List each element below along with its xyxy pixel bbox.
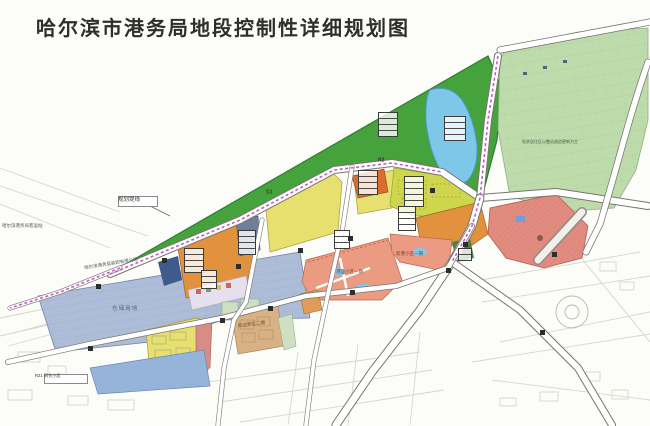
planning-map-scan: 哈尔滨市港务局地段控制性详细规划图 规划堤线 R21 码头小区 G1 R2 哈尔… xyxy=(0,0,650,426)
indicator-table xyxy=(378,112,398,137)
indicator-table xyxy=(444,116,466,141)
road-node-marker xyxy=(298,248,303,253)
indicator-table xyxy=(358,170,378,195)
road-node-marker xyxy=(446,268,451,273)
dike-label-chip: 规划堤线 xyxy=(118,196,158,207)
road-node-marker xyxy=(552,252,557,257)
storage-area-label: 仓储用地 xyxy=(112,306,138,312)
green-zone-code: G1 xyxy=(266,190,273,195)
road-node-marker xyxy=(220,318,225,323)
residential-zone-code: R2 xyxy=(378,158,384,163)
existing-note-label: 现状居住区以整治改造更新为主 xyxy=(522,140,578,144)
passenger-center-label: 哈尔滨港务局客运站 xyxy=(2,224,43,229)
indicator-table xyxy=(398,206,416,231)
district-code-chip: R21 码头小区 xyxy=(44,374,88,384)
map-drawing xyxy=(0,0,650,426)
road-node-marker xyxy=(350,290,355,295)
map-title: 哈尔滨市港务局地段控制性详细规划图 xyxy=(36,12,410,41)
road-node-marker xyxy=(540,330,545,335)
indicator-table xyxy=(404,176,424,207)
indicator-table xyxy=(238,230,256,255)
district-code-label: R21 码头小区 xyxy=(35,374,61,378)
road-node-marker xyxy=(463,242,468,247)
road-node-marker xyxy=(96,284,101,289)
indicator-table xyxy=(201,270,217,289)
road-node-marker xyxy=(162,258,167,263)
road-node-marker xyxy=(430,188,435,193)
existing-residential-zone xyxy=(498,28,648,212)
road-node-marker xyxy=(236,264,241,269)
district-one-label: 港运小区一期 xyxy=(336,270,363,275)
road-node-marker xyxy=(268,306,273,311)
dike-label: 规划堤线 xyxy=(118,197,140,203)
road-node-marker xyxy=(348,236,353,241)
district-two-label: 新港小区一期 xyxy=(396,252,423,257)
indicator-table xyxy=(458,248,472,261)
road-node-marker xyxy=(88,346,93,351)
